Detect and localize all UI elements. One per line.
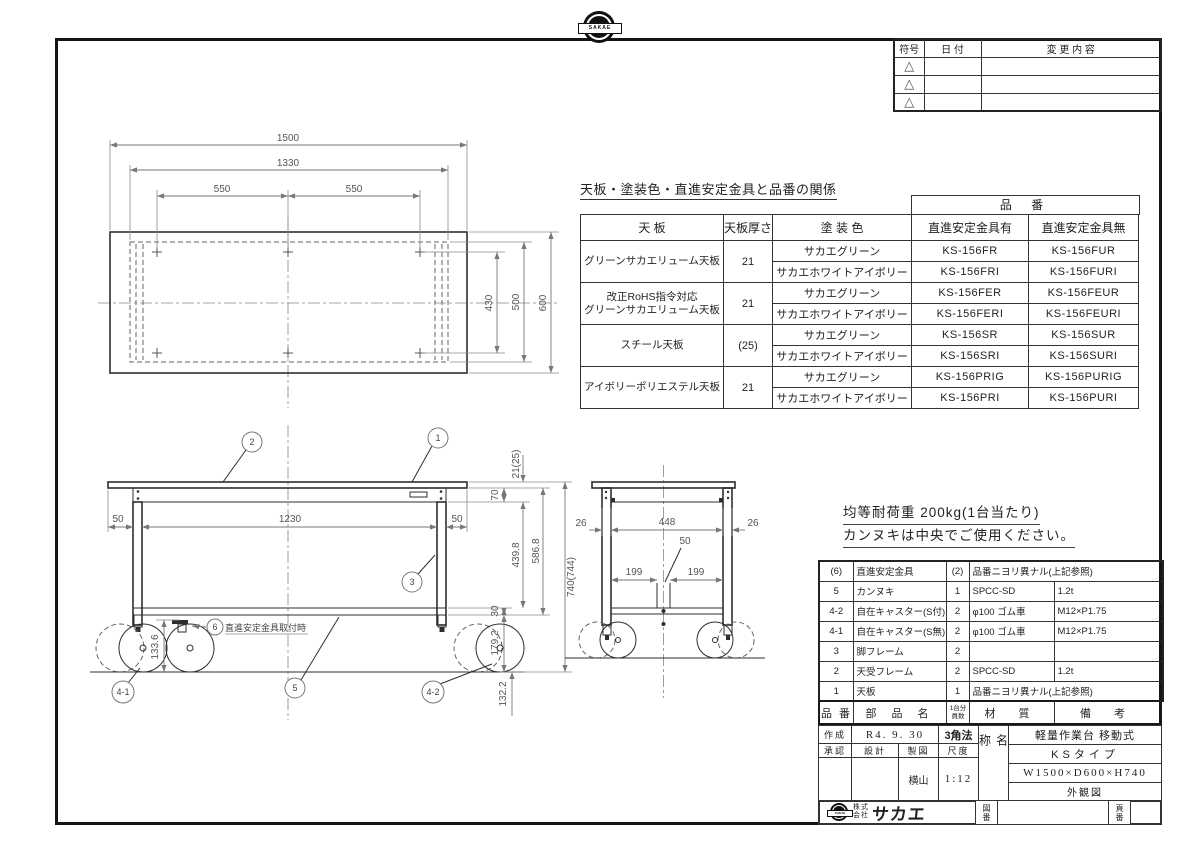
part-material: 品番ニヨリ異ナル(上記参照) [969, 561, 1163, 581]
relation-partno-with: KS-156PRI [912, 388, 1029, 409]
relation-top-name: アイボリーポリエステル天板 [581, 367, 724, 409]
part-remarks: M12×P1.75 [1054, 601, 1163, 621]
side-dim-448: 448 [659, 517, 676, 528]
sakae-logo-top: SAKAE [583, 11, 615, 43]
relation-col-thickness: 天板厚さ [724, 215, 773, 241]
front-dim-1230: 1230 [279, 514, 302, 525]
side-casters [565, 622, 765, 658]
relation-color: サカエグリーン [773, 367, 912, 388]
page-no-label: 頁番 [1108, 800, 1131, 825]
plan-dim-600: 600 [538, 294, 549, 311]
revision-change-cell [981, 93, 1161, 111]
part-name: 自在キャスター(S付) [853, 601, 946, 621]
parts-list-table: (6) 直進安定金具 (2) 品番ニヨリ異ナル(上記参照) 5 カンヌキ 1 S… [818, 560, 1164, 702]
part-material [969, 641, 1054, 661]
balloon-2: 2 [249, 437, 254, 447]
relation-partno-without: KS-156SURI [1029, 346, 1139, 367]
relation-partno-with: KS-156SRI [912, 346, 1029, 367]
relation-color: サカエホワイトアイボリー [773, 346, 912, 367]
front-dim-586-8: 586.8 [531, 538, 542, 563]
front-balloons: 2 1 3 5 4-1 4-2 6 直進安定金具取付時 [112, 428, 492, 703]
part-remarks: M12×P1.75 [1054, 621, 1163, 641]
side-dim-26-left: 26 [575, 518, 587, 529]
part-material: φ100 ゴム車 [969, 621, 1054, 641]
parts-head-name: 部 品 名 [854, 702, 947, 723]
projection-method: 3角法 [938, 725, 979, 744]
balloon-4-1: 4-1 [116, 687, 129, 697]
part-name: 天板 [853, 681, 946, 701]
part-name: カンヌキ [853, 581, 946, 601]
balloon-6: 6 [212, 622, 217, 632]
front-dim-top-thickness: 21(25) [511, 450, 522, 479]
front-workbench-outline [108, 482, 467, 632]
created-label: 作成 [818, 725, 852, 744]
balloon-4-2: 4-2 [426, 687, 439, 697]
relation-partno-without: KS-156FUR [1029, 241, 1139, 262]
part-remarks: 1.2t [1054, 581, 1163, 601]
relation-col-color: 塗 装 色 [773, 215, 912, 241]
part-name: 直進安定金具 [853, 561, 946, 581]
designed-stamp-cell [851, 757, 899, 801]
drawing-sheet: SAKAE 符号 日 付 変 更 内 容 △ △ △ 天板・塗装色・直進安定金具… [0, 0, 1200, 849]
front-dim-50-right: 50 [451, 514, 463, 525]
part-qty: 2 [946, 621, 969, 641]
side-view: 26 448 26 50 199 199 [565, 440, 855, 720]
scale-label: 尺度 [938, 743, 979, 758]
note-load-capacity: 均等耐荷重 200kg(1台当たり) [843, 502, 1040, 525]
balloon-5: 5 [292, 683, 297, 693]
part-material: φ100 ゴム車 [969, 601, 1054, 621]
relation-color: サカエホワイトアイボリー [773, 304, 912, 325]
part-qty: 2 [946, 601, 969, 621]
relation-col-without: 直進安定金具無 [1029, 215, 1139, 241]
revision-date-cell [924, 75, 981, 93]
parts-head-material: 材 質 [970, 702, 1055, 723]
part-no: 4-2 [819, 601, 853, 621]
front-dimensions: 50 1230 50 21(25) 70 439.8 586.8 30 179.… [108, 450, 577, 716]
relation-table: 天 板 天板厚さ 塗 装 色 直進安定金具有 直進安定金具無 グリーンサカエリュ… [580, 214, 1139, 409]
drawing-no-value-cell [997, 800, 1109, 825]
revision-date-cell [924, 57, 981, 75]
drafter-name: 横山 [898, 757, 939, 801]
relation-partno-with: KS-156FRI [912, 262, 1029, 283]
parts-head-no: 品 番 [820, 702, 854, 723]
relation-partno-header: 品 番 [911, 195, 1140, 215]
part-qty: 1 [946, 681, 969, 701]
parts-head-remarks: 備 考 [1055, 702, 1160, 723]
part-no: (6) [819, 561, 853, 581]
relation-color: サカエグリーン [773, 241, 912, 262]
company-brand: サカエ [871, 800, 928, 825]
part-no: 4-1 [819, 621, 853, 641]
revision-mark-icon: △ [894, 75, 924, 93]
part-name: 天受フレーム [853, 661, 946, 681]
part-material: SPCC-SD [969, 581, 1054, 601]
revision-mark-icon: △ [894, 93, 924, 111]
plan-dim-1330: 1330 [277, 158, 300, 169]
plan-dim-430: 430 [484, 294, 495, 311]
relation-partno-with: KS-156FR [912, 241, 1029, 262]
product-series: KSタイプ [1008, 744, 1162, 764]
relation-color: サカエグリーン [773, 325, 912, 346]
relation-color: サカエグリーン [773, 283, 912, 304]
relation-partno-without: KS-156FEURI [1029, 304, 1139, 325]
company-name-prefix: 株式会社 [853, 804, 869, 820]
top-name-line: アイボリーポリエステル天板 [581, 381, 723, 394]
created-date: R4. 9. 30 [851, 725, 939, 744]
drawing-no-label: 図番 [975, 800, 998, 825]
revision-mark-icon: △ [894, 57, 924, 75]
part-no: 5 [819, 581, 853, 601]
top-name-line: 改正RoHS指令対応 [581, 291, 723, 304]
part-no: 3 [819, 641, 853, 661]
revision-col-date: 日 付 [924, 39, 981, 57]
front-dim-30: 30 [490, 605, 501, 617]
side-dim-50: 50 [679, 536, 691, 547]
plan-centerlines [98, 218, 558, 408]
relation-partno-without: KS-156FURI [1029, 262, 1139, 283]
plan-dimensions: 1500 1330 550 550 430 500 600 [110, 133, 559, 373]
part-remarks: 1.2t [1054, 661, 1163, 681]
relation-color: サカエホワイトアイボリー [773, 262, 912, 283]
relation-col-with: 直進安定金具有 [912, 215, 1029, 241]
plan-caster-position-marks [152, 247, 425, 358]
relation-partno-with: KS-156PRIG [912, 367, 1029, 388]
drawing-kind: 外観図 [1008, 782, 1162, 801]
plan-view: 1500 1330 550 550 430 500 600 [60, 120, 580, 410]
plan-dim-550-right: 550 [346, 184, 363, 195]
part-no: 1 [819, 681, 853, 701]
parts-head-qty: 1台分員数 [947, 702, 970, 723]
top-name-line: グリーンサカエリューム天板 [581, 304, 723, 317]
relation-partno-without: KS-156PURI [1029, 388, 1139, 409]
part-material: 品番ニヨリ異ナル(上記参照) [969, 681, 1163, 701]
relation-thickness: 21 [724, 367, 773, 409]
front-dim-70: 70 [490, 489, 501, 501]
top-name-line: スチール天板 [581, 339, 723, 352]
balloon-1: 1 [435, 433, 440, 443]
name-label: 名称 [978, 725, 1009, 801]
relation-col-top: 天 板 [581, 215, 724, 241]
note-kannuki: カンヌキは中央でご使用ください。 [843, 525, 1075, 548]
relation-thickness: 21 [724, 283, 773, 325]
side-dim-199-left: 199 [626, 567, 643, 578]
logo-band-text: SAKAE [827, 810, 853, 817]
part-qty: 2 [946, 641, 969, 661]
front-dim-50-left: 50 [112, 514, 124, 525]
relation-top-name: 改正RoHS指令対応 グリーンサカエリューム天板 [581, 283, 724, 325]
relation-partno-with: KS-156FER [912, 283, 1029, 304]
part-qty: 2 [946, 661, 969, 681]
relation-partno-without: KS-156FEUR [1029, 283, 1139, 304]
product-type: 軽量作業台 移動式 [1008, 725, 1162, 745]
relation-top-name: グリーンサカエリューム天板 [581, 241, 724, 283]
front-view: 50 1230 50 21(25) 70 439.8 586.8 30 179.… [60, 420, 590, 730]
front-dim-132-2: 132.2 [498, 681, 509, 706]
designed-label: 設計 [851, 743, 899, 758]
plan-dim-1500: 1500 [277, 133, 300, 144]
side-dim-26-right: 26 [747, 518, 759, 529]
revision-change-cell [981, 75, 1161, 93]
side-dim-199-right: 199 [688, 567, 705, 578]
revision-date-cell [924, 93, 981, 111]
part-material: SPCC-SD [969, 661, 1054, 681]
part-name: 脚フレーム [853, 641, 946, 661]
balloon-3: 3 [409, 577, 414, 587]
logo-band-text: SAKAE [578, 23, 622, 34]
part-no: 2 [819, 661, 853, 681]
relation-partno-without: KS-156PURIG [1029, 367, 1139, 388]
relation-partno-with: KS-156SR [912, 325, 1029, 346]
balloon-6-note: 直進安定金具取付時 [225, 622, 306, 633]
top-name-line: グリーンサカエリューム天板 [581, 255, 723, 268]
sakae-logo-bottom: SAKAE [830, 803, 848, 821]
plan-dim-500: 500 [511, 293, 522, 310]
revision-change-cell [981, 57, 1161, 75]
revision-table: 符号 日 付 変 更 内 容 △ △ △ [893, 38, 1162, 112]
part-qty: (2) [946, 561, 969, 581]
front-dim-439-8: 439.8 [511, 542, 522, 567]
scale-value: 1:12 [938, 757, 979, 801]
part-name: 自在キャスター(S無) [853, 621, 946, 641]
revision-col-symbol: 符号 [894, 39, 924, 57]
load-capacity-notes: 均等耐荷重 200kg(1台当たり) カンヌキは中央でご使用ください。 [843, 502, 1075, 548]
approved-label: 承認 [818, 743, 852, 758]
part-qty: 1 [946, 581, 969, 601]
relation-table-title: 天板・塗装色・直進安定金具と品番の関係 [580, 179, 837, 200]
relation-color: サカエホワイトアイボリー [773, 388, 912, 409]
revision-col-change: 変 更 内 容 [981, 39, 1161, 57]
approved-stamp-cell [818, 757, 852, 801]
parts-list-header: 品 番 部 品 名 1台分員数 材 質 備 考 [818, 700, 1162, 725]
drafted-label: 製図 [898, 743, 939, 758]
relation-partno-without: KS-156SUR [1029, 325, 1139, 346]
front-dim-133-6: 133.6 [150, 634, 161, 659]
relation-thickness: 21 [724, 241, 773, 283]
relation-partno-with: KS-156FERI [912, 304, 1029, 325]
relation-thickness: (25) [724, 325, 773, 367]
part-remarks [1054, 641, 1163, 661]
front-dim-179-2: 179.2 [490, 630, 501, 655]
relation-top-name: スチール天板 [581, 325, 724, 367]
plan-dim-550-left: 550 [214, 184, 231, 195]
product-size: W1500×D600×H740 [1008, 763, 1162, 783]
page-no-value-cell [1130, 800, 1162, 825]
